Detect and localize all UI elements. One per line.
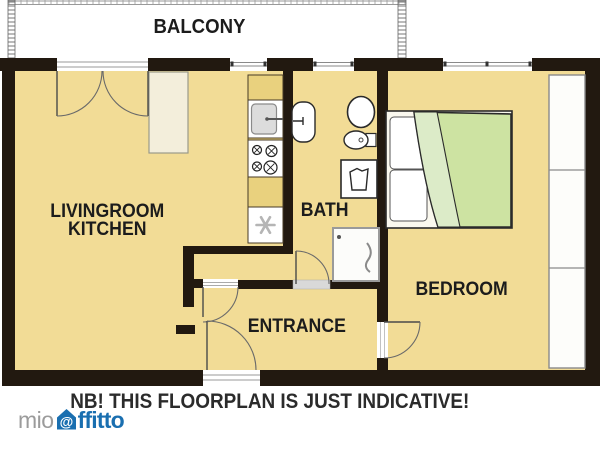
wardrobe [549, 75, 585, 368]
entrance-label: ENTRANCE [217, 318, 377, 336]
svg-text:@: @ [59, 414, 73, 430]
brand-logo: mio@ffitto [18, 406, 124, 434]
logo-suffix: ffitto [78, 407, 124, 433]
window-bath [313, 58, 354, 71]
stove [248, 140, 283, 177]
bedroom-label: BEDROOM [382, 281, 542, 299]
wall-pilaster [176, 325, 195, 334]
livingroom-door-threshold [203, 279, 238, 288]
window-livingroom [230, 58, 267, 71]
livingroom-cabinet [149, 72, 188, 153]
bedroom-door-threshold [377, 322, 388, 358]
bath-sink [292, 102, 315, 142]
balcony-door-sill [57, 58, 148, 71]
bed [386, 111, 512, 228]
floorplan-image: BALCONY LIVINGROOM KITCHEN BATH ENTRANCE… [0, 0, 600, 450]
window-bedroom [443, 58, 532, 71]
wall-stub-left [193, 279, 203, 288]
bidet [344, 131, 376, 149]
shower [333, 228, 379, 281]
wall-entrance-bedroom-lower [377, 358, 388, 370]
pillow [390, 170, 427, 221]
wall-entrance-vertical [183, 246, 194, 307]
wall-bottom [2, 370, 598, 386]
wall-kitchen-bath [283, 58, 293, 254]
wall-entrance-top [183, 246, 293, 254]
entrance-door-sill [203, 370, 260, 386]
wall-right [585, 58, 600, 386]
balcony-left-railing [8, 0, 15, 58]
kitchen-sink [248, 100, 283, 138]
bath-door-threshold [293, 280, 330, 289]
wall-left [2, 58, 15, 386]
washing-machine [341, 160, 377, 198]
balcony-right-railing [398, 0, 406, 58]
house-at-icon: @ [54, 406, 79, 433]
toilet [348, 97, 375, 128]
bath-label: BATH [275, 202, 375, 220]
wall-entrance-lower [238, 280, 293, 289]
livingroom-kitchen-label: LIVINGROOM KITCHEN [17, 203, 197, 239]
balcony-label: BALCONY [99, 18, 299, 36]
logo-prefix: mio [18, 407, 54, 433]
